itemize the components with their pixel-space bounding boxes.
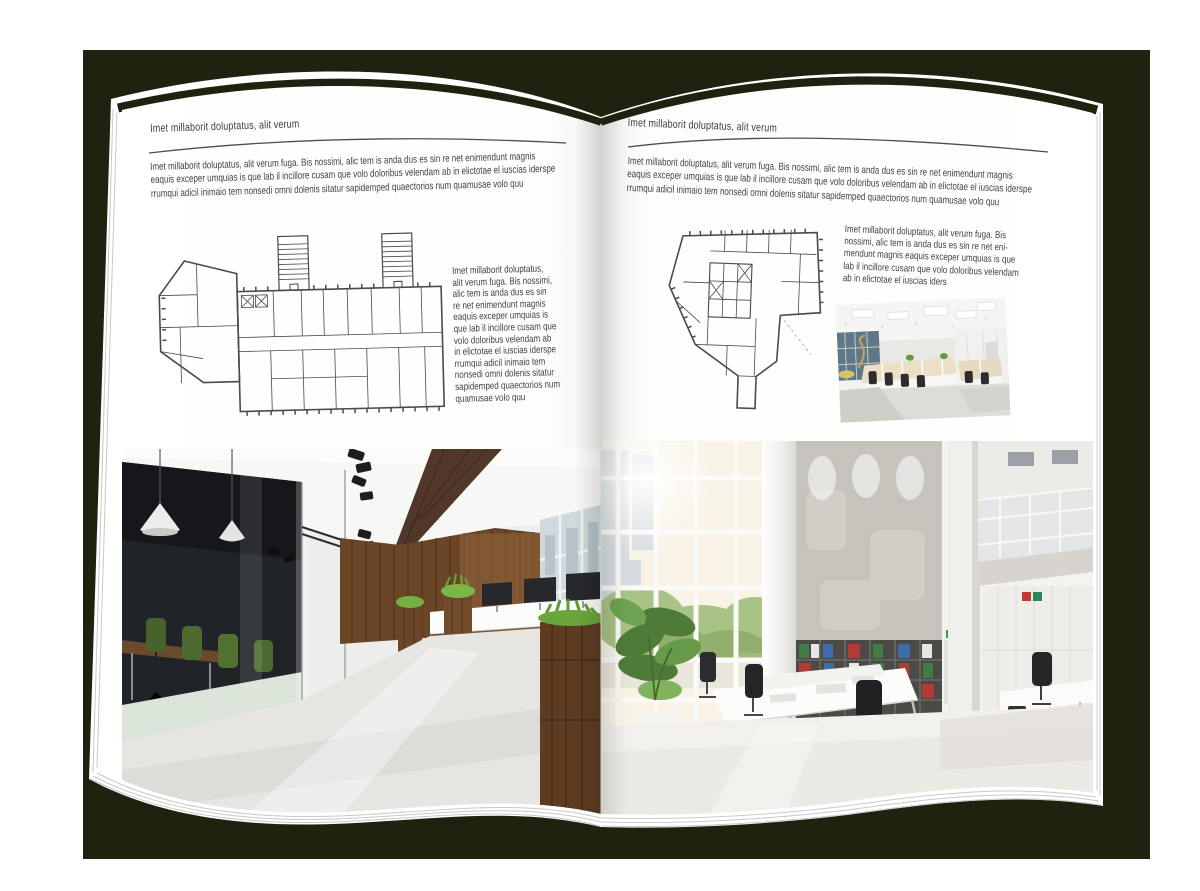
office-photo-right (570, 405, 1093, 830)
office-photo-small (836, 297, 1011, 422)
left-page-side-text: Imet millaborit doluptatus, alit verum f… (452, 263, 588, 406)
right-page-side-text: Imet millaborit doluptatus, alit verum f… (843, 224, 1041, 293)
brochure-mockup: Imet millaborit doluptatus, alit verum I… (0, 0, 1200, 891)
office-photo-left (122, 448, 606, 830)
